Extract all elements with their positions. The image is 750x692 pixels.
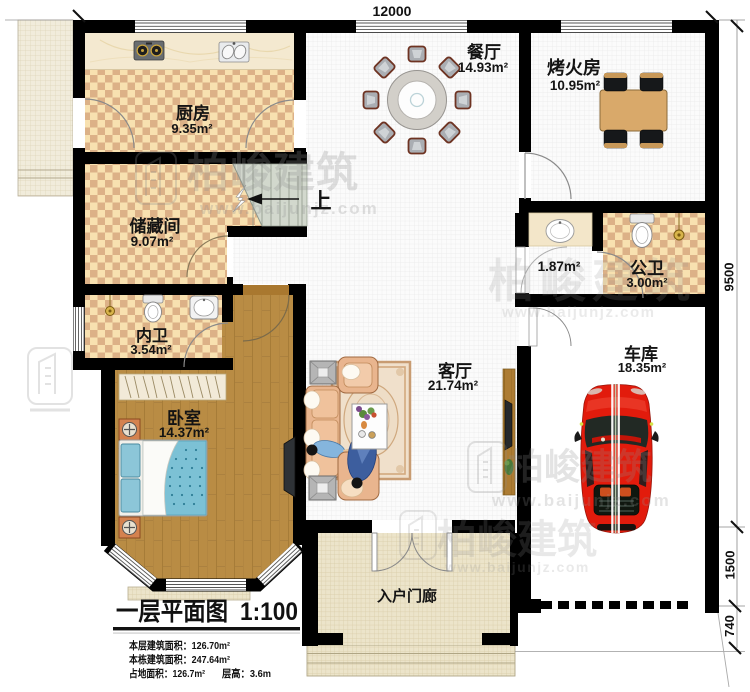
svg-text:www.baijunjz.com: www.baijunjz.com [501,304,655,321]
svg-text:烤火房: 烤火房 [547,57,601,78]
svg-text:上: 上 [311,190,332,213]
svg-text:9.07m²: 9.07m² [131,234,174,249]
svg-text:餐厅: 餐厅 [467,42,501,62]
svg-text:柏峻建筑: 柏峻建筑 [508,446,652,487]
svg-text:柏峻建筑: 柏峻建筑 [187,149,359,196]
svg-text:www.baijunjz.com: www.baijunjz.com [491,491,671,510]
svg-text:柏峻建筑: 柏峻建筑 [437,518,597,562]
svg-text:740: 740 [722,615,737,637]
svg-text:18.35m²: 18.35m² [618,360,667,375]
svg-text:10.95m²: 10.95m² [550,78,601,93]
svg-text:1:100: 1:100 [240,598,298,626]
svg-text:本栋建筑面积：247.64m²: 本栋建筑面积：247.64m² [129,653,230,666]
svg-text:3.00m²: 3.00m² [626,275,668,290]
svg-text:占地面积：126.7m²: 占地面积：126.7m² [129,667,205,680]
svg-text:层高：3.6m: 层高：3.6m [222,667,271,680]
svg-text:本层建筑面积：126.70m²: 本层建筑面积：126.70m² [129,639,230,652]
svg-text:14.93m²: 14.93m² [458,60,509,75]
svg-text:入户门廊: 入户门廊 [377,587,437,605]
svg-text:www.baijunjz.com: www.baijunjz.com [199,199,379,218]
svg-text:www.baijunjz.com: www.baijunjz.com [444,559,590,575]
svg-text:9500: 9500 [722,263,737,292]
svg-text:9.35m²: 9.35m² [171,121,213,136]
svg-text:储藏间: 储藏间 [130,216,181,236]
svg-text:21.74m²: 21.74m² [428,378,479,393]
svg-text:1.87m²: 1.87m² [538,259,581,274]
svg-text:14.37m²: 14.37m² [159,425,210,440]
svg-text:厨房: 厨房 [176,103,210,123]
svg-text:3.54m²: 3.54m² [130,342,172,357]
svg-text:12000: 12000 [373,3,412,19]
svg-text:1500: 1500 [723,551,738,580]
svg-text:一层平面图: 一层平面图 [116,598,228,626]
